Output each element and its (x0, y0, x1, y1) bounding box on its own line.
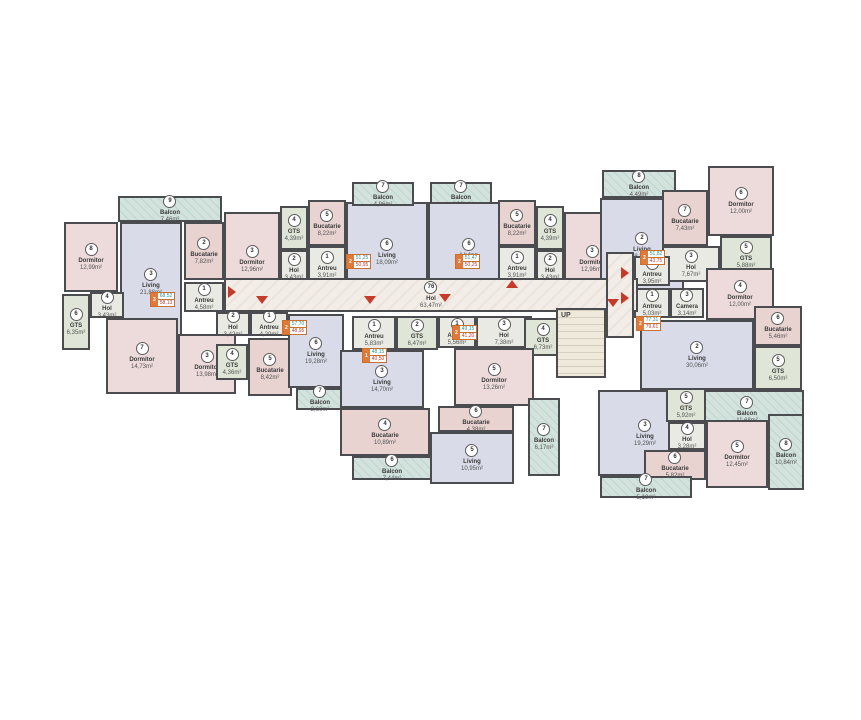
room-number-badge: 3 (201, 350, 214, 363)
room-gts: 5GTS6,50m² (754, 346, 802, 390)
apartment-area-tag: 251,2550,95 (346, 254, 371, 269)
room-number-badge: 2 (544, 253, 557, 266)
apartment-area-values: 51,8243,75 (648, 251, 665, 264)
room-number-badge: 1 (368, 319, 381, 332)
room-name: Antreu (507, 266, 526, 272)
room-balcon: 6Balcon7,44m² (352, 456, 432, 480)
room-number-badge: 8 (632, 170, 645, 183)
room-area: 6,50m² (769, 376, 788, 382)
room-living: 5Living10,95m² (430, 432, 514, 484)
room-number-badge: 6 (380, 238, 393, 251)
room-number-badge: 5 (731, 440, 744, 453)
room-area: 12,45m² (726, 462, 748, 468)
room-dormitor: 7Dormitor14,73m² (106, 318, 178, 394)
stairwell: UP (556, 308, 606, 378)
room-area: 4,36m² (223, 370, 242, 376)
room-area: 7,38m² (495, 340, 514, 346)
room-name: Bucatarie (661, 466, 688, 472)
room-label: 6Balcon7,44m² (382, 454, 402, 483)
room-label: 7Balcon3,60m² (310, 385, 330, 414)
direction-arrow-right-icon (621, 267, 629, 279)
room-number-badge: 6 (735, 187, 748, 200)
room-label: 6Dormitor12,00m² (728, 187, 753, 216)
apartment-area-bottom-value: 50,25 (463, 262, 480, 268)
room-number-badge: 3 (498, 318, 511, 331)
direction-arrow-down-icon (439, 294, 451, 302)
room-label: 3Dormitor12,96m² (239, 245, 264, 274)
room-number-badge: 6 (469, 405, 482, 418)
room-name: Dormitor (724, 455, 749, 461)
room-number-badge: 5 (320, 209, 333, 222)
apartment-area-bottom-value: 43,75 (648, 258, 665, 264)
room-label: 7Dormitor14,73m² (129, 342, 154, 371)
room-name: Bucatarie (190, 252, 217, 258)
room-number-badge: 76 (424, 281, 437, 294)
direction-arrow-up-icon (506, 280, 518, 288)
room-balcon: 7Balcon3,60m² (296, 388, 344, 410)
room-name: GTS (288, 229, 300, 235)
room-name: Bucatarie (462, 420, 489, 426)
apartment-area-bottom-value: 41,20 (460, 333, 477, 339)
room-number-badge: 7 (537, 423, 550, 436)
room-number-badge: 2 (690, 341, 703, 354)
room-number-badge: 7 (678, 204, 691, 217)
room-number-badge: 6 (771, 312, 784, 325)
room-area: 12,99m² (80, 265, 102, 271)
room-gts: 5GTS5,92m² (666, 388, 706, 422)
room-number-badge: 5 (740, 241, 753, 254)
room-label: 3Hol7,67m² (682, 250, 701, 279)
room-name: Hol (686, 265, 696, 271)
direction-arrow-down-icon (607, 299, 619, 307)
room-dormitor: 5Dormitor12,45m² (706, 420, 768, 488)
room-label: 2Hol3,43m² (541, 253, 560, 282)
apartment-number: 2 (637, 317, 644, 330)
room-name: Living (142, 283, 160, 289)
room-name: Balcon (382, 469, 402, 475)
apartment-area-tag: 251,4750,25 (455, 254, 480, 269)
room-area: 6,35m² (67, 330, 86, 336)
room-number-badge: 5 (465, 444, 478, 457)
room-gts: 4GTS4,39m² (536, 206, 564, 250)
stairs-up-label: UP (561, 312, 571, 319)
room-label: 8Balcon4,49m² (629, 170, 649, 199)
room-label: 5Bucatarie8,22m² (503, 209, 530, 238)
room-number-badge: 5 (772, 354, 785, 367)
room-label: 7Balcon4,96m² (373, 180, 393, 209)
room-balcon: 9Balcon7,46m² (118, 196, 222, 222)
room-label: 8Dormitor12,99m² (78, 243, 103, 272)
room-area: 63,47m² (420, 303, 442, 309)
room-label: 7Balcon5,19m² (636, 473, 656, 502)
room-name: Antreu (317, 266, 336, 272)
room-label: 4GTS4,39m² (285, 214, 304, 243)
room-number-badge: 2 (197, 237, 210, 250)
apartment-area-bottom-value: 48,95 (290, 328, 307, 334)
room-number-badge: 4 (226, 348, 239, 361)
room-area: 6,73m² (534, 345, 553, 351)
room-label: 5GTS5,88m² (737, 241, 756, 270)
room-label: 6GTS6,35m² (67, 308, 86, 337)
room-area: 3,60m² (311, 407, 330, 413)
room-name: Balcon (636, 488, 656, 494)
apartment-area-tag: 148,1540,50 (362, 348, 387, 363)
room-number-badge: 6 (309, 337, 322, 350)
room-name: Camera (676, 304, 698, 310)
apartment-area-top-value: 48,15 (370, 349, 387, 356)
room-area: 4,39m² (541, 236, 560, 242)
room-camera: 3Camera3,14m² (670, 288, 704, 318)
room-number-badge: 9 (163, 195, 176, 208)
room-label: 4GTS4,36m² (223, 348, 242, 377)
room-number-badge: 8 (85, 243, 98, 256)
room-number-badge: 3 (685, 250, 698, 263)
apartment-area-top-value: 49,15 (460, 326, 477, 333)
apartment-area-values: 48,1540,50 (370, 349, 387, 362)
apartment-area-tag: 277,3179,61 (636, 316, 661, 331)
apartment-area-values: 77,3179,61 (644, 317, 661, 330)
room-label: 9Balcon7,46m² (160, 195, 180, 224)
room-name: Living (378, 253, 396, 259)
room-gts: 4GTS4,39m² (280, 206, 308, 250)
room-number-badge: 7 (376, 180, 389, 193)
room-hol: 4Hol3,43m² (90, 292, 124, 318)
room-area: 5,83m² (365, 341, 384, 347)
room-number-badge: 1 (511, 251, 524, 264)
room-area: 10,84m² (775, 460, 797, 466)
room-number-badge: 7 (454, 180, 467, 193)
room-number-badge: 4 (288, 214, 301, 227)
direction-arrow-right-icon (621, 292, 629, 304)
room-label: 4Hol3,43m² (98, 291, 117, 320)
room-name: Antreu (194, 298, 213, 304)
room-name: Hol (545, 268, 555, 274)
room-number-badge: 4 (101, 291, 114, 304)
apartment-area-tag: 368,5258,13 (150, 292, 175, 307)
room-name: Balcon (737, 411, 757, 417)
room-name: Bucatarie (256, 368, 283, 374)
room-label: 4Bucatarie10,89m² (371, 418, 398, 447)
room-name: GTS (772, 369, 784, 375)
room-name: Balcon (373, 195, 393, 201)
room-name: Hol (228, 325, 238, 331)
room-label: 2Living30,06m² (686, 341, 708, 370)
room-name: Bucatarie (671, 219, 698, 225)
corridor-segment (606, 252, 634, 338)
room-bucatarie: 7Bucatarie7,43m² (662, 190, 708, 246)
room-number-badge: 2 (288, 253, 301, 266)
room-area: 10,89m² (374, 440, 396, 446)
room-name: GTS (70, 323, 82, 329)
room-number-badge: 3 (144, 268, 157, 281)
room-number-badge: 6 (385, 454, 398, 467)
room-number-badge: 1 (198, 283, 211, 296)
apartment-number: 3 (151, 293, 158, 306)
room-label: 1Antreu4,20m² (259, 310, 278, 339)
room-area: 6,17m² (535, 445, 554, 451)
room-label: 5Living10,95m² (461, 444, 483, 473)
room-name: GTS (537, 338, 549, 344)
room-area: 5,56m² (448, 340, 467, 346)
apartment-area-top-value: 77,31 (644, 317, 661, 324)
room-label: 1Antreu5,83m² (364, 319, 383, 348)
apartment-number: 2 (347, 255, 354, 268)
apartment-area-top-value: 57,70 (290, 321, 307, 328)
room-area: 8,42m² (261, 375, 280, 381)
room-number-badge: 3 (586, 245, 599, 258)
room-name: Bucatarie (764, 327, 791, 333)
room-area: 14,70m² (371, 387, 393, 393)
room-area: 7,44m² (383, 476, 402, 482)
room-label: 2Bucatarie7,82m² (190, 237, 217, 266)
room-label: 3Camera3,14m² (676, 289, 698, 318)
apartment-number: 2 (453, 326, 460, 339)
room-label: 5Bucatarie8,42m² (256, 353, 283, 382)
room-antreu: 1Antreu5,83m² (352, 316, 396, 350)
room-name: Hol (289, 268, 299, 274)
room-name: Balcon (160, 210, 180, 216)
room-area: 3,14m² (678, 311, 697, 317)
apartment-area-tag: 249,1541,20 (452, 325, 477, 340)
room-number-badge: 8 (779, 438, 792, 451)
room-name: Antreu (642, 272, 661, 278)
room-label: 4GTS4,39m² (541, 214, 560, 243)
room-area: 4,58m² (195, 305, 214, 311)
room-area: 8,22m² (318, 231, 337, 237)
room-area: 14,73m² (131, 364, 153, 370)
room-number-badge: 3 (680, 289, 693, 302)
apartment-area-values: 51,4750,25 (463, 255, 480, 268)
direction-arrow-down-icon (364, 296, 376, 304)
room-name: Dormitor (239, 260, 264, 266)
room-label: 1Antreu5,03m² (642, 289, 661, 318)
room-name: Dormitor (728, 202, 753, 208)
room-area: 5,19m² (637, 495, 656, 501)
room-name: GTS (740, 256, 752, 262)
room-number-badge: 5 (263, 353, 276, 366)
room-bucatarie: 6Bucatarie5,46m² (754, 306, 802, 346)
room-name: Bucatarie (503, 224, 530, 230)
room-bucatarie: 4Bucatarie10,89m² (340, 408, 430, 456)
room-bucatarie: 6Bucatarie4,38m² (438, 406, 514, 432)
apartment-area-values: 51,2550,95 (354, 255, 371, 268)
room-name: Living (688, 356, 706, 362)
apartment-area-values: 57,7048,95 (290, 321, 307, 334)
room-label: 6Bucatarie5,46m² (764, 312, 791, 341)
room-label: 5GTS6,50m² (769, 354, 788, 383)
room-area: 3,95m² (643, 279, 662, 285)
room-balcon: 7Balcon6,17m² (528, 398, 560, 476)
room-name: Living (307, 352, 325, 358)
apartment-number: 2 (456, 255, 463, 268)
room-dormitor: 6Dormitor12,00m² (708, 166, 774, 236)
room-number-badge: 7 (740, 396, 753, 409)
room-area: 18,09m² (376, 260, 398, 266)
room-number-badge: 1 (321, 251, 334, 264)
room-name: Hol (102, 306, 112, 312)
room-gts: 2GTS6,47m² (396, 316, 438, 350)
room-gts: 4GTS4,36m² (216, 344, 248, 380)
room-balcon: 7Balcon4,96m² (352, 182, 414, 206)
room-area: 6,47m² (408, 341, 427, 347)
room-name: Hol (426, 296, 436, 302)
room-number-badge: 4 (378, 418, 391, 431)
room-label: 7Bucatarie7,43m² (671, 204, 698, 233)
room-name: Balcon (534, 438, 554, 444)
room-number-badge: 4 (537, 323, 550, 336)
room-hol: 4Hol3,28m² (668, 422, 706, 450)
room-number-badge: 3 (246, 245, 259, 258)
apartment-area-top-value: 51,82 (648, 251, 665, 258)
room-label: 2GTS6,47m² (408, 319, 427, 348)
room-area: 13,26m² (483, 385, 505, 391)
room-bucatarie: 2Bucatarie7,82m² (184, 222, 224, 280)
room-area: 12,96m² (241, 267, 263, 273)
room-name: Dormitor (78, 258, 103, 264)
room-name: Dormitor (481, 378, 506, 384)
room-area: 12,00m² (730, 209, 752, 215)
room-name: GTS (680, 406, 692, 412)
apartment-area-bottom-value: 79,61 (644, 324, 661, 330)
room-area: 5,46m² (769, 334, 788, 340)
room-area: 8,22m² (508, 231, 527, 237)
room-area: 19,28m² (305, 359, 327, 365)
apartment-area-bottom-value: 58,13 (158, 300, 175, 306)
room-name: Balcon (776, 453, 796, 459)
room-name: Dormitor (129, 357, 154, 363)
room-label: 6Living18,09m² (376, 238, 398, 267)
room-name: Hol (682, 437, 692, 443)
room-name: GTS (226, 363, 238, 369)
room-label: 4Dormitor12,00m² (727, 280, 752, 309)
room-name: Living (463, 459, 481, 465)
room-bucatarie: 5Bucatarie8,42m² (248, 338, 292, 396)
room-hol: 2Hol3,42m² (216, 312, 250, 336)
room-balcon: 7Balcon5,19m² (600, 476, 692, 498)
room-area: 10,95m² (461, 466, 483, 472)
room-number-badge: 5 (510, 209, 523, 222)
apartment-area-top-value: 51,47 (463, 255, 480, 262)
room-label: 3Hol7,38m² (495, 318, 514, 347)
room-area: 12,00m² (729, 302, 751, 308)
direction-arrow-right-icon (228, 286, 236, 298)
room-number-badge: 6 (668, 451, 681, 464)
room-balcon: 8Balcon10,84m² (768, 414, 804, 490)
room-name: Balcon (451, 195, 471, 201)
room-area: 7,67m² (682, 272, 701, 278)
room-area: 4,39m² (285, 236, 304, 242)
room-label: 8Balcon10,84m² (775, 438, 797, 467)
room-label: 6Bucatarie5,82m² (661, 451, 688, 480)
apartment-area-values: 49,1541,20 (460, 326, 477, 339)
room-name: Antreu (364, 334, 383, 340)
room-number-badge: 5 (680, 391, 693, 404)
room-number-badge: 6 (70, 308, 83, 321)
room-number-badge: 3 (375, 365, 388, 378)
room-number-badge: 3 (638, 419, 651, 432)
room-name: Bucatarie (371, 433, 398, 439)
room-number-badge: 5 (488, 363, 501, 376)
room-number-badge: 2 (411, 319, 424, 332)
apartment-area-top-value: 68,52 (158, 293, 175, 300)
apartment-area-tag: 251,8243,75 (640, 250, 665, 265)
room-antreu: 1Antreu5,03m² (634, 288, 670, 318)
room-gts: 6GTS6,35m² (62, 294, 90, 350)
apartment-area-values: 68,5258,13 (158, 293, 175, 306)
room-dormitor: 8Dormitor12,99m² (64, 222, 118, 292)
room-label: 2Hol3,43m² (285, 253, 304, 282)
room-name: GTS (411, 334, 423, 340)
room-area: 30,06m² (686, 363, 708, 369)
room-dormitor: 5Dormitor13,26m² (454, 348, 534, 406)
room-label: 6Living19,28m² (305, 337, 327, 366)
room-number-badge: 6 (462, 238, 475, 251)
floorplan-canvas: 9Balcon7,46m²8Dormitor12,99m²3Living21,8… (0, 0, 861, 720)
room-number-badge: 1 (646, 289, 659, 302)
apartment-area-top-value: 51,25 (354, 255, 371, 262)
apartment-area-bottom-value: 40,50 (370, 356, 387, 362)
apartment-area-bottom-value: 50,95 (354, 262, 371, 268)
room-label: 3Living19,29m² (634, 419, 656, 448)
direction-arrow-down-icon (256, 296, 268, 304)
room-bucatarie: 5Bucatarie8,22m² (308, 200, 346, 246)
apartment-area-tag: 257,7048,95 (282, 320, 307, 335)
room-number-badge: 7 (136, 342, 149, 355)
apartment-number: 1 (363, 349, 370, 362)
room-label: 5GTS5,92m² (677, 391, 696, 420)
room-name: Hol (499, 333, 509, 339)
room-label: 5Bucatarie8,22m² (313, 209, 340, 238)
apartment-number: 2 (641, 251, 648, 264)
room-label: 1Antreu3,91m² (507, 251, 526, 280)
room-label: 1Antreu4,58m² (194, 283, 213, 312)
room-label: 3Living14,70m² (371, 365, 393, 394)
room-number-badge: 4 (734, 280, 747, 293)
room-name: GTS (544, 229, 556, 235)
room-name: Living (373, 380, 391, 386)
room-antreu: 1Antreu4,58m² (184, 282, 224, 312)
room-label: 4GTS6,73m² (534, 323, 553, 352)
room-label: 2Hol3,42m² (224, 310, 243, 339)
room-area: 7,82m² (195, 259, 214, 265)
room-name: Dormitor (727, 295, 752, 301)
room-label: 5Dormitor13,26m² (481, 363, 506, 392)
room-name: Living (636, 434, 654, 440)
room-area: 13,98m² (196, 372, 218, 378)
room-area: 19,29m² (634, 441, 656, 447)
room-number-badge: 4 (681, 422, 694, 435)
room-name: Antreu (259, 325, 278, 331)
apartment-number: 2 (283, 321, 290, 334)
room-number-badge: 2 (635, 232, 648, 245)
room-area: 7,43m² (676, 226, 695, 232)
room-bucatarie: 5Bucatarie8,22m² (498, 200, 536, 246)
room-name: Balcon (629, 185, 649, 191)
room-name: Balcon (310, 400, 330, 406)
room-number-badge: 4 (544, 214, 557, 227)
room-name: Antreu (642, 304, 661, 310)
room-label: 7Balcon6,17m² (534, 423, 554, 452)
room-label: 1Antreu3,91m² (317, 251, 336, 280)
room-label: 6Bucatarie4,38m² (462, 405, 489, 434)
room-name: Bucatarie (313, 224, 340, 230)
room-hol: 76Hol63,47m² (224, 278, 638, 312)
room-label: 5Dormitor12,45m² (724, 440, 749, 469)
room-area: 5,92m² (677, 413, 696, 419)
room-label: 4Hol3,28m² (678, 422, 697, 451)
